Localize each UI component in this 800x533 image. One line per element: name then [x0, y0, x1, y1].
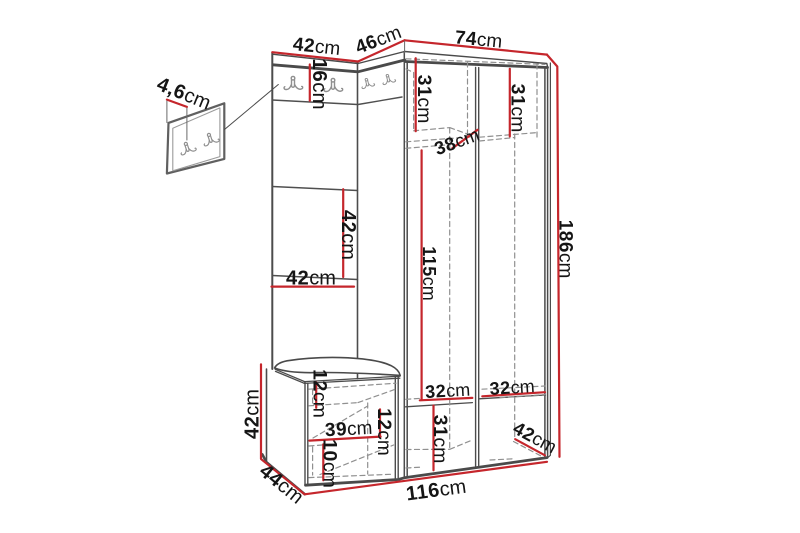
svg-text:39cm: 39cm [324, 418, 373, 441]
svg-text:12cm: 12cm [373, 408, 394, 455]
svg-text:32cm: 32cm [425, 380, 471, 402]
svg-text:10cm: 10cm [319, 439, 341, 488]
svg-text:12cm: 12cm [309, 369, 331, 418]
svg-text:16cm: 16cm [308, 58, 331, 109]
svg-text:31cm: 31cm [506, 84, 528, 133]
svg-text:31cm: 31cm [429, 415, 451, 464]
svg-text:42cm: 42cm [510, 417, 561, 457]
svg-text:42cm: 42cm [286, 268, 336, 290]
svg-text:44cm: 44cm [255, 460, 308, 509]
svg-text:4,6cm: 4,6cm [154, 73, 214, 114]
svg-text:74cm: 74cm [454, 27, 503, 52]
svg-text:32cm: 32cm [489, 376, 535, 399]
svg-text:115cm: 115cm [419, 246, 439, 301]
svg-text:42cm: 42cm [337, 210, 359, 260]
svg-text:186cm: 186cm [554, 220, 575, 279]
svg-text:42cm: 42cm [241, 389, 263, 439]
svg-text:31cm: 31cm [413, 75, 435, 124]
